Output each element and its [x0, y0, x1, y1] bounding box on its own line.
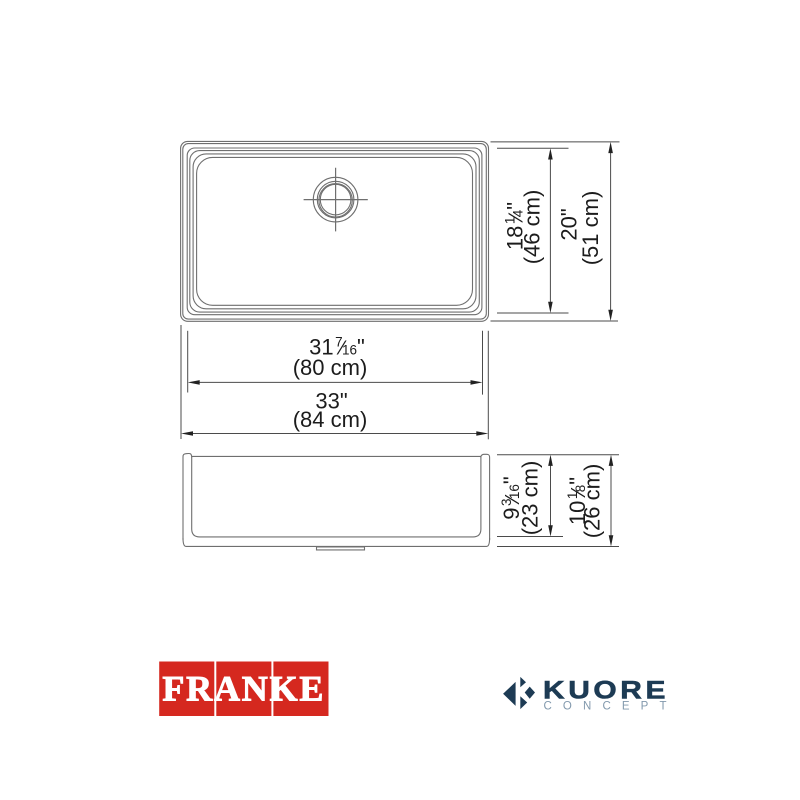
- svg-text:(84 cm): (84 cm): [293, 407, 368, 432]
- svg-text:(46 cm): (46 cm): [520, 190, 545, 265]
- svg-text:(80 cm): (80 cm): [293, 355, 368, 380]
- svg-text:(26 cm): (26 cm): [580, 464, 605, 539]
- svg-text:(23 cm): (23 cm): [518, 461, 543, 536]
- svg-text:CONCEPT: CONCEPT: [544, 701, 672, 713]
- svg-text:FRANKE: FRANKE: [162, 669, 325, 709]
- svg-text:(51 cm): (51 cm): [578, 191, 603, 266]
